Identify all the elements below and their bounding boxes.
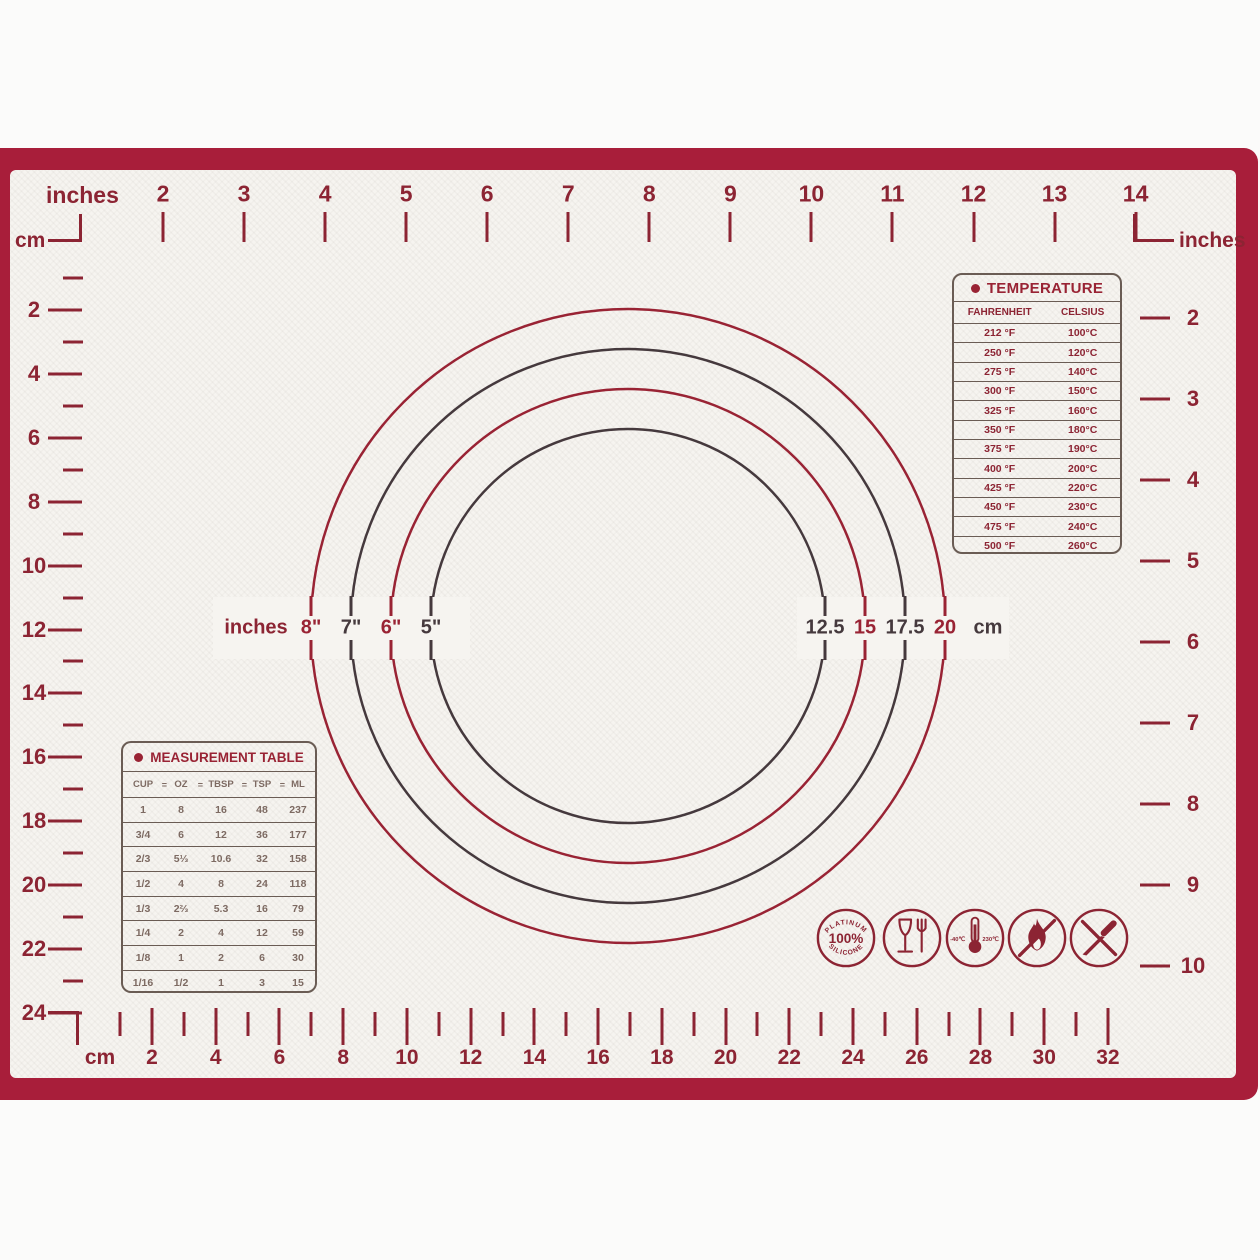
bottom-ruler-tick	[1106, 1008, 1109, 1045]
celsius-value: 230°C	[1045, 501, 1120, 513]
bottom-ruler-number: 4	[210, 1046, 222, 1070]
fahrenheit-value: 350 °F	[954, 424, 1045, 436]
measurement-value: 3/4	[123, 829, 163, 841]
measurement-value: 15	[281, 977, 315, 989]
bottom-ruler-minor-tick	[756, 1012, 759, 1036]
top-ruler-number: 14	[1123, 181, 1149, 208]
bottom-ruler-number: 20	[714, 1046, 737, 1070]
bottom-ruler-number: 30	[1033, 1046, 1056, 1070]
fahrenheit-value: 425 °F	[954, 482, 1045, 494]
thermometer-max-temp: 230℃	[982, 936, 999, 943]
bottom-ruler-minor-tick	[246, 1012, 249, 1036]
circle-diameter-label-cm: 20	[934, 617, 956, 640]
left-ruler-tick	[48, 948, 82, 951]
top-ruler-number: 13	[1042, 181, 1068, 208]
measurement-value: 118	[281, 878, 315, 890]
measurement-value: 1/16	[123, 977, 163, 989]
celsius-value: 240°C	[1045, 521, 1120, 533]
wine-glass-glyph	[898, 920, 912, 952]
top-ruler-tick	[891, 212, 894, 242]
celsius-column-header: CELSIUS	[1045, 307, 1120, 318]
measurement-value: 16	[199, 804, 243, 816]
top-ruler-number: 9	[724, 181, 737, 208]
left-ruler-minor-tick	[63, 979, 83, 982]
left-ruler-minor-tick	[63, 596, 83, 599]
temperature-row: 300 °F150°C	[954, 381, 1120, 400]
circle-diameter-label-inches: 6"	[381, 617, 402, 640]
measurement-value: 4	[199, 927, 243, 939]
right-ruler-tick	[1140, 560, 1170, 563]
measurement-value: 1	[199, 977, 243, 989]
left-ruler-unit-label: cm	[15, 229, 45, 253]
measurement-value: 3	[243, 977, 281, 989]
measurement-value: 2⅔	[163, 903, 199, 915]
no-open-flame-icon	[1006, 907, 1068, 969]
fahrenheit-value: 400 °F	[954, 463, 1045, 475]
measurement-value: 5.3	[199, 903, 243, 915]
bottom-ruler-tick	[214, 1008, 217, 1045]
right-ruler-number: 4	[1187, 467, 1199, 493]
top-ruler-tick	[324, 212, 327, 242]
measurement-row: 1/812630	[123, 945, 315, 970]
measurement-row: 2/35⅓10.632158	[123, 846, 315, 871]
top-ruler-tick	[243, 212, 246, 242]
bottom-ruler-tick	[724, 1008, 727, 1045]
bottom-ruler-minor-tick	[119, 1012, 122, 1036]
bottom-ruler-tick	[597, 1008, 600, 1045]
baking-mat-photo: inches cm inches cm inches cm TEMPERATUR…	[0, 0, 1260, 1260]
measurement-row: 1/161/21315	[123, 970, 315, 993]
top-ruler-number: 4	[319, 181, 332, 208]
measurement-value: 36	[243, 829, 281, 841]
temperature-row: 475 °F240°C	[954, 516, 1120, 535]
top-ruler-number: 2	[157, 181, 170, 208]
right-ruler-tick	[1140, 884, 1170, 887]
measurement-column-header: TBSP=	[199, 779, 243, 790]
left-ruler-minor-tick	[63, 788, 83, 791]
temperature-range-icon: -40℃ 230℃	[944, 907, 1006, 969]
fahrenheit-value: 250 °F	[954, 347, 1045, 359]
top-ruler-tick	[972, 212, 975, 242]
temperature-table: TEMPERATURE FAHRENHEIT CELSIUS 212 °F100…	[952, 273, 1122, 554]
bottom-ruler-number: 22	[778, 1046, 801, 1070]
bullet-icon	[134, 753, 143, 762]
right-ruler-number: 8	[1187, 791, 1199, 817]
left-ruler-tick	[48, 756, 82, 759]
top-ruler-tick	[729, 212, 732, 242]
right-ruler-number: 6	[1187, 629, 1199, 655]
measurement-column-headers: CUP=OZ=TBSP=TSP=ML	[123, 772, 315, 797]
top-ruler-number: 5	[400, 181, 413, 208]
right-ruler-tick	[1140, 803, 1170, 806]
bottom-ruler-number: 10	[395, 1046, 418, 1070]
top-ruler-tick	[162, 212, 165, 242]
right-ruler-tick	[1140, 317, 1170, 320]
temperature-rows: 212 °F100°C250 °F120°C275 °F140°C300 °F1…	[954, 323, 1120, 554]
bottom-ruler-number: 28	[969, 1046, 992, 1070]
top-left-bracket-vertical	[79, 214, 82, 242]
left-ruler-minor-tick	[63, 916, 83, 919]
bottom-ruler-tick	[469, 1008, 472, 1045]
size-circles	[0, 0, 1260, 1260]
bottom-ruler-tick	[788, 1008, 791, 1045]
circle-right-unit-label: cm	[974, 617, 1003, 640]
measurement-column-name: ML	[291, 779, 305, 790]
top-ruler-tick	[405, 212, 408, 242]
left-ruler-tick	[48, 884, 82, 887]
fahrenheit-column-header: FAHRENHEIT	[954, 307, 1045, 318]
left-ruler-minor-tick	[63, 468, 83, 471]
measurement-rows: 1816482373/4612361772/35⅓10.6321581/2482…	[123, 797, 315, 993]
measurement-value: 1/2	[163, 977, 199, 989]
bottom-ruler-minor-tick	[883, 1012, 886, 1036]
measurement-value: 237	[281, 804, 315, 816]
bottom-ruler-tick	[915, 1008, 918, 1045]
top-ruler-number: 11	[880, 181, 904, 208]
fahrenheit-value: 325 °F	[954, 405, 1045, 417]
measurement-value: 12	[243, 927, 281, 939]
bottom-ruler-tick	[342, 1008, 345, 1045]
measurement-value: 177	[281, 829, 315, 841]
bottom-ruler-number: 26	[905, 1046, 928, 1070]
top-ruler-number: 7	[562, 181, 575, 208]
left-ruler-number: 20	[22, 872, 46, 898]
right-ruler-tick	[1140, 479, 1170, 482]
temperature-row: 325 °F160°C	[954, 400, 1120, 419]
measurement-value: 2/3	[123, 853, 163, 865]
left-ruler-tick	[48, 692, 82, 695]
temperature-row: 450 °F230°C	[954, 497, 1120, 516]
left-ruler-tick	[48, 500, 82, 503]
measurement-value: 1	[123, 804, 163, 816]
measurement-row: 3/461236177	[123, 822, 315, 847]
right-ruler-number: 7	[1187, 710, 1199, 736]
bottom-ruler-minor-tick	[565, 1012, 568, 1036]
measurement-row: 1/24824118	[123, 871, 315, 896]
top-right-bracket-horizontal	[1133, 239, 1174, 242]
celsius-value: 100°C	[1045, 327, 1120, 339]
circle-diameter-label-inches: 7"	[341, 617, 362, 640]
right-ruler-unit-label: inches	[1179, 229, 1246, 253]
fahrenheit-value: 450 °F	[954, 501, 1045, 513]
measurement-column-name: CUP	[133, 779, 153, 790]
bottom-ruler-minor-tick	[1011, 1012, 1014, 1036]
measurement-value: 1/4	[123, 927, 163, 939]
left-ruler-number: 16	[22, 744, 46, 770]
bottom-ruler-minor-tick	[820, 1012, 823, 1036]
left-ruler-minor-tick	[63, 532, 83, 535]
temperature-column-headers: FAHRENHEIT CELSIUS	[954, 302, 1120, 323]
measurement-value: 6	[243, 952, 281, 964]
bottom-ruler-number: 32	[1096, 1046, 1119, 1070]
measurement-value: 1/2	[123, 878, 163, 890]
temperature-table-title: TEMPERATURE	[987, 280, 1103, 297]
fahrenheit-value: 275 °F	[954, 366, 1045, 378]
measurement-value: 59	[281, 927, 315, 939]
circle-diameter-label-inches: 8"	[301, 617, 322, 640]
celsius-value: 260°C	[1045, 540, 1120, 552]
left-ruler-minor-tick	[63, 852, 83, 855]
bottom-ruler-number: 2	[146, 1046, 158, 1070]
measurement-value: 8	[199, 878, 243, 890]
left-ruler-tick	[48, 564, 82, 567]
bottom-ruler-tick	[852, 1008, 855, 1045]
left-ruler-number: 22	[22, 936, 46, 962]
bottom-ruler-minor-tick	[374, 1012, 377, 1036]
thermometer-min-temp: -40℃	[950, 936, 965, 943]
knife-handle	[1104, 923, 1114, 933]
top-ruler-number: 8	[643, 181, 656, 208]
celsius-value: 140°C	[1045, 366, 1120, 378]
temperature-row: 425 °F220°C	[954, 478, 1120, 497]
measurement-value: 1/3	[123, 903, 163, 915]
left-ruler-number: 4	[28, 361, 40, 387]
measurement-value: 16	[243, 903, 281, 915]
top-ruler-tick	[486, 212, 489, 242]
celsius-value: 220°C	[1045, 482, 1120, 494]
left-ruler-tick	[48, 436, 82, 439]
measurement-value: 24	[243, 878, 281, 890]
fahrenheit-value: 475 °F	[954, 521, 1045, 533]
left-ruler-number: 24	[22, 1000, 46, 1026]
bottom-ruler-tick	[278, 1008, 281, 1045]
mat-printed-content: inches cm inches cm inches cm TEMPERATUR…	[0, 0, 1260, 1260]
bottom-left-bracket-vertical	[76, 1011, 79, 1045]
left-ruler-tick	[48, 820, 82, 823]
left-ruler-tick	[48, 309, 82, 312]
left-ruler-number: 2	[28, 297, 40, 323]
bottom-ruler-tick	[1043, 1008, 1046, 1045]
right-ruler-tick	[1140, 398, 1170, 401]
left-ruler-tick	[48, 628, 82, 631]
left-ruler-number: 6	[28, 425, 40, 451]
bottom-ruler-minor-tick	[692, 1012, 695, 1036]
measurement-column-header: CUP=	[123, 779, 163, 790]
temperature-row: 375 °F190°C	[954, 439, 1120, 458]
bottom-ruler-minor-tick	[1075, 1012, 1078, 1036]
top-ruler-number: 3	[238, 181, 251, 208]
measurement-value: 32	[243, 853, 281, 865]
right-ruler-tick	[1140, 641, 1170, 644]
left-ruler-minor-tick	[63, 660, 83, 663]
food-safe-icon	[881, 907, 943, 969]
top-ruler-number: 12	[961, 181, 987, 208]
top-ruler-number: 10	[799, 181, 825, 208]
left-ruler-minor-tick	[63, 404, 83, 407]
measurement-table-header: MEASUREMENT TABLE	[123, 743, 315, 772]
measurement-value: 5⅓	[163, 853, 199, 865]
left-ruler-number: 12	[22, 617, 46, 643]
bottom-ruler-tick	[533, 1008, 536, 1045]
circle-diameter-label-inches: 5"	[421, 617, 442, 640]
bottom-ruler-unit-label: cm	[85, 1046, 115, 1070]
measurement-value: 12	[199, 829, 243, 841]
circle-diameter-label-cm: 15	[854, 617, 876, 640]
measurement-column-name: TSP	[253, 779, 271, 790]
measurement-row: 1/4241259	[123, 920, 315, 945]
bottom-ruler-minor-tick	[628, 1012, 631, 1036]
temperature-row: 500 °F260°C	[954, 536, 1120, 554]
right-ruler-number: 9	[1187, 872, 1199, 898]
bottom-ruler-number: 12	[459, 1046, 482, 1070]
bullet-icon	[971, 284, 980, 293]
fahrenheit-value: 212 °F	[954, 327, 1045, 339]
fahrenheit-value: 500 °F	[954, 540, 1045, 552]
celsius-value: 150°C	[1045, 385, 1120, 397]
measurement-column-name: TBSP	[208, 779, 233, 790]
measurement-value: 79	[281, 903, 315, 915]
bottom-ruler-minor-tick	[947, 1012, 950, 1036]
measurement-column-header: OZ=	[163, 779, 199, 790]
right-ruler-number: 5	[1187, 548, 1199, 574]
top-ruler-tick	[1134, 212, 1137, 242]
celsius-value: 160°C	[1045, 405, 1120, 417]
measurement-column-header: TSP=	[243, 779, 281, 790]
left-ruler-number: 14	[22, 680, 46, 706]
measurement-value: 6	[163, 829, 199, 841]
measurement-value: 48	[243, 804, 281, 816]
bottom-ruler-minor-tick	[437, 1012, 440, 1036]
temperature-row: 212 °F100°C	[954, 323, 1120, 342]
celsius-value: 180°C	[1045, 424, 1120, 436]
bottom-ruler-minor-tick	[501, 1012, 504, 1036]
circle-left-unit-label: inches	[224, 617, 287, 640]
left-ruler-tick	[48, 372, 82, 375]
right-ruler-number: 2	[1187, 305, 1199, 331]
top-ruler-tick	[648, 212, 651, 242]
left-ruler-minor-tick	[63, 277, 83, 280]
temperature-row: 275 °F140°C	[954, 362, 1120, 381]
circle-diameter-label-cm: 17.5	[886, 617, 925, 640]
left-ruler-number: 8	[28, 489, 40, 515]
temperature-row: 350 °F180°C	[954, 420, 1120, 439]
circle-diameter-label-cm: 12.5	[806, 617, 845, 640]
measurement-column-name: OZ	[174, 779, 187, 790]
fork-glyph	[918, 920, 926, 952]
bottom-ruler-number: 24	[841, 1046, 864, 1070]
bottom-ruler-number: 16	[586, 1046, 609, 1070]
left-ruler-minor-tick	[63, 724, 83, 727]
platinum-silicone-badge: PLATINUM 100% SILICONE	[815, 907, 877, 969]
bottom-ruler-number: 18	[650, 1046, 673, 1070]
bottom-ruler-tick	[660, 1008, 663, 1045]
measurement-value: 2	[163, 927, 199, 939]
right-ruler-tick	[1140, 722, 1170, 725]
bottom-ruler-number: 6	[274, 1046, 286, 1070]
right-ruler-number: 3	[1187, 386, 1199, 412]
measurement-table-title: MEASUREMENT TABLE	[150, 750, 304, 765]
celsius-value: 200°C	[1045, 463, 1120, 475]
celsius-value: 120°C	[1045, 347, 1120, 359]
measurement-value: 2	[199, 952, 243, 964]
bottom-ruler-tick	[979, 1008, 982, 1045]
top-left-bracket-horizontal	[48, 239, 82, 242]
top-ruler-tick	[810, 212, 813, 242]
left-ruler-tick	[48, 1011, 82, 1014]
top-ruler-unit-label: inches	[46, 182, 119, 209]
measurement-row: 1/32⅔5.31679	[123, 896, 315, 921]
top-ruler-tick	[567, 212, 570, 242]
fahrenheit-value: 300 °F	[954, 385, 1045, 397]
temperature-table-header: TEMPERATURE	[954, 275, 1120, 302]
measurement-column-header: ML	[281, 779, 315, 790]
top-ruler-number: 6	[481, 181, 494, 208]
measurement-value: 1	[163, 952, 199, 964]
bottom-ruler-number: 14	[523, 1046, 546, 1070]
temperature-row: 250 °F120°C	[954, 342, 1120, 361]
measurement-value: 10.6	[199, 853, 243, 865]
temperature-row: 400 °F200°C	[954, 458, 1120, 477]
measurement-value: 1/8	[123, 952, 163, 964]
bottom-ruler-minor-tick	[310, 1012, 313, 1036]
bottom-ruler-number: 8	[337, 1046, 349, 1070]
measurement-table: MEASUREMENT TABLE CUP=OZ=TBSP=TSP=ML 181…	[121, 741, 317, 993]
right-ruler-tick	[1140, 965, 1170, 968]
ring-5-inch	[431, 429, 825, 823]
celsius-value: 190°C	[1045, 443, 1120, 455]
top-ruler-tick	[1053, 212, 1056, 242]
bottom-ruler-tick	[151, 1008, 154, 1045]
left-ruler-number: 18	[22, 808, 46, 834]
measurement-value: 30	[281, 952, 315, 964]
left-ruler-number: 10	[22, 553, 46, 579]
bottom-ruler-tick	[405, 1008, 408, 1045]
fahrenheit-value: 375 °F	[954, 443, 1045, 455]
measurement-row: 181648237	[123, 797, 315, 822]
no-knife-icon	[1068, 907, 1130, 969]
food-safe-circle	[884, 910, 940, 966]
bottom-ruler-minor-tick	[182, 1012, 185, 1036]
badge-center-text: 100%	[829, 931, 864, 946]
right-ruler-number: 10	[1181, 953, 1205, 979]
left-ruler-minor-tick	[63, 340, 83, 343]
measurement-value: 8	[163, 804, 199, 816]
measurement-value: 4	[163, 878, 199, 890]
measurement-value: 158	[281, 853, 315, 865]
